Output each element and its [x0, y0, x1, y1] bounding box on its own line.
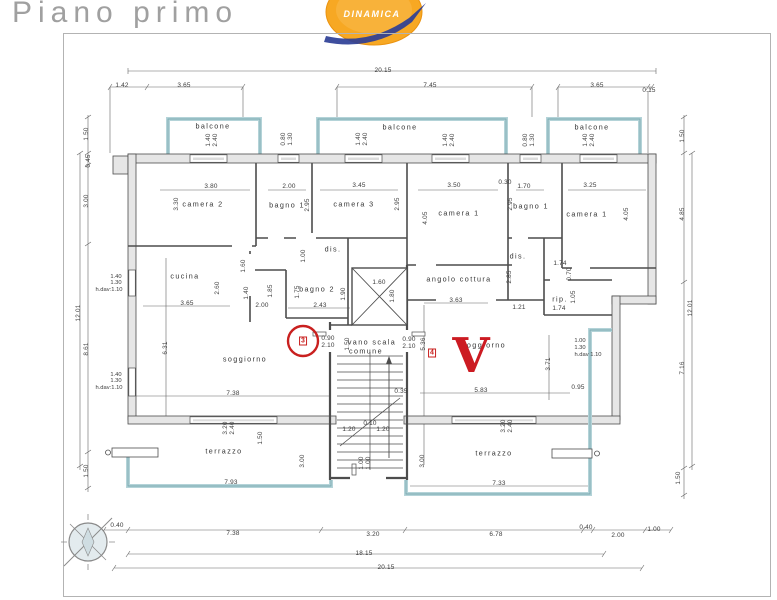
room-label-camera-2: camera 2 [182, 200, 223, 207]
room-label-rip.: rip. [552, 295, 568, 302]
dim-3.65: 3.65 [180, 301, 193, 307]
dim-1.00: 1.00 [301, 249, 307, 262]
dim-1.50: 1.50 [84, 127, 90, 140]
dim-1.74: 1.74 [553, 261, 566, 267]
dim-1.30: 1.30 [288, 132, 294, 145]
dim-1.50: 1.50 [345, 337, 351, 350]
sill-dim-h.dav-1.10: h.dav:1.10 [95, 386, 122, 392]
dim-1.80: 1.80 [390, 289, 396, 302]
dim-6.31: 6.31 [163, 341, 169, 354]
dim-2.10: 2.10 [321, 343, 334, 349]
dim-3.00: 3.00 [84, 194, 90, 207]
dim-0.40: 0.40 [110, 523, 123, 529]
dim-7.38: 7.38 [226, 531, 239, 537]
dim-1.70: 1.70 [517, 184, 530, 190]
room-label-dis.: dis. [325, 245, 342, 252]
dim-3.30: 3.30 [174, 197, 180, 210]
dim-7.33: 7.33 [492, 481, 505, 487]
dim-3.00: 3.00 [420, 454, 426, 467]
dim-18.15: 18.15 [356, 551, 373, 557]
room-label-bagno-1: bagno 1 [269, 201, 305, 208]
room-label-camera-1: camera 1 [566, 210, 607, 217]
dim-7.45: 7.45 [423, 83, 436, 89]
dim-5.36: 5.36 [421, 337, 427, 350]
plan-labels: balconebalconebalconecamera 2bagno 1came… [0, 0, 777, 600]
room-label-balcone: balcone [575, 123, 610, 130]
marker-4: 4 [428, 349, 436, 358]
dim-2.40: 2.40 [450, 133, 456, 146]
room-label-comune: comune [349, 347, 383, 354]
sill-dim-1.30: 1.30 [110, 281, 121, 287]
dim-2.00: 2.00 [282, 184, 295, 190]
dim-1.50: 1.50 [676, 471, 682, 484]
dim-1.50: 1.50 [258, 431, 264, 444]
dim-0.95: 0.95 [571, 385, 584, 391]
room-label-camera-3: camera 3 [333, 200, 374, 207]
marker-3: 3 [299, 337, 307, 346]
room-label-cucina: cucina [170, 272, 199, 279]
dim-3.00: 3.00 [300, 454, 306, 467]
room-label-terrazzo: terrazzo [205, 447, 242, 454]
dim-20.15: 20.15 [375, 68, 392, 74]
dim-4.05: 4.05 [423, 211, 429, 224]
dim-1.00: 1.00 [647, 527, 660, 533]
floor-plan-page: Piano primo DINAMICA [0, 0, 777, 600]
room-label-bagno-2: bagno 2 [299, 285, 335, 292]
dim-3.45: 3.45 [352, 183, 365, 189]
dim-2.40: 2.40 [213, 133, 219, 146]
dim-8.61: 8.61 [84, 342, 90, 355]
dim-7.38: 7.38 [226, 391, 239, 397]
dim-2.43: 2.43 [313, 303, 326, 309]
room-label-vano-scala: vano scala [348, 338, 396, 345]
dim-1.50: 1.50 [84, 464, 90, 477]
dim-0.45: 0.45 [86, 154, 92, 167]
dim-2.40: 2.40 [230, 421, 236, 434]
dim-1.60: 1.60 [241, 259, 247, 272]
dim-3.20: 3.20 [366, 532, 379, 538]
sill-dim-1.00: 1.00 [574, 339, 585, 345]
dim-12.01: 12.01 [688, 300, 694, 317]
dim-1.21: 1.21 [512, 305, 525, 311]
dim-0.10: 0.10 [363, 421, 376, 427]
dim-5.83: 5.83 [474, 388, 487, 394]
dim-3.71: 3.71 [546, 357, 552, 370]
dim-0.40: 0.40 [579, 525, 592, 531]
dim-1.42: 1.42 [115, 83, 128, 89]
dim-1.50: 1.50 [680, 129, 686, 142]
dim-0.30: 0.30 [498, 180, 511, 186]
dim-7.93: 7.93 [224, 480, 237, 486]
dim-0.35: 0.35 [394, 389, 407, 395]
dim-1.20: 1.20 [342, 427, 355, 433]
dim-1.05: 1.05 [571, 290, 577, 303]
dim-4.05: 4.05 [624, 207, 630, 220]
dim-3.63: 3.63 [449, 298, 462, 304]
dim-2.00: 2.00 [255, 303, 268, 309]
dim-3.65: 3.65 [177, 83, 190, 89]
dim-2.40: 2.40 [363, 132, 369, 145]
room-label-terrazzo: terrazzo [475, 449, 512, 456]
dim-3.25: 3.25 [583, 183, 596, 189]
dim-1.75: 1.75 [295, 285, 301, 298]
dim-1.85: 1.85 [268, 284, 274, 297]
dim-1.00: 1.00 [366, 456, 372, 469]
dim-1.74: 1.74 [552, 306, 565, 312]
dim-2.00: 2.00 [611, 533, 624, 539]
dim-6.78: 6.78 [489, 532, 502, 538]
room-label-balcone: balcone [383, 123, 418, 130]
sill-dim-h.dav-1.10: h.dav 1.10 [574, 353, 601, 359]
sill-dim-1.30: 1.30 [574, 346, 585, 352]
dim-1.60: 1.60 [372, 280, 385, 286]
dim-4.85: 4.85 [680, 207, 686, 220]
room-label-angolo-cottura: angolo cottura [426, 275, 491, 282]
dim-2.95: 2.95 [508, 197, 514, 210]
dim-2.40: 2.40 [590, 133, 596, 146]
room-label-dis.: dis. [510, 252, 527, 259]
dim-2.95: 2.95 [305, 198, 311, 211]
dim-1.90: 1.90 [341, 287, 347, 300]
dim-1.20: 1.20 [376, 427, 389, 433]
dim-3.65: 3.65 [590, 83, 603, 89]
sill-dim-1.30: 1.30 [110, 379, 121, 385]
dim-1.40: 1.40 [244, 286, 250, 299]
dim-1.30: 1.30 [530, 133, 536, 146]
dim-3.80: 3.80 [204, 184, 217, 190]
dim-3.50: 3.50 [447, 183, 460, 189]
dim-0.70: 0.70 [567, 267, 573, 280]
dim-2.10: 2.10 [402, 344, 415, 350]
room-label-camera-1: camera 1 [438, 209, 479, 216]
marker-v: V [452, 332, 489, 380]
dim-2.40: 2.40 [508, 419, 514, 432]
dim-2.85: 2.85 [507, 270, 513, 283]
room-label-balcone: balcone [196, 122, 231, 129]
sill-dim-h.dav-1.10: h.dav:1.10 [95, 288, 122, 294]
dim-2.60: 2.60 [215, 281, 221, 294]
room-label-bagno-1: bagno 1 [513, 202, 549, 209]
room-label-soggiorno: soggiorno [223, 355, 267, 362]
dim-0.15: 0.15 [642, 88, 655, 94]
dim-2.95: 2.95 [395, 197, 401, 210]
dim-20.15: 20.15 [378, 565, 395, 571]
dim-12.01: 12.01 [76, 305, 82, 322]
dim-7.16: 7.16 [680, 361, 686, 374]
